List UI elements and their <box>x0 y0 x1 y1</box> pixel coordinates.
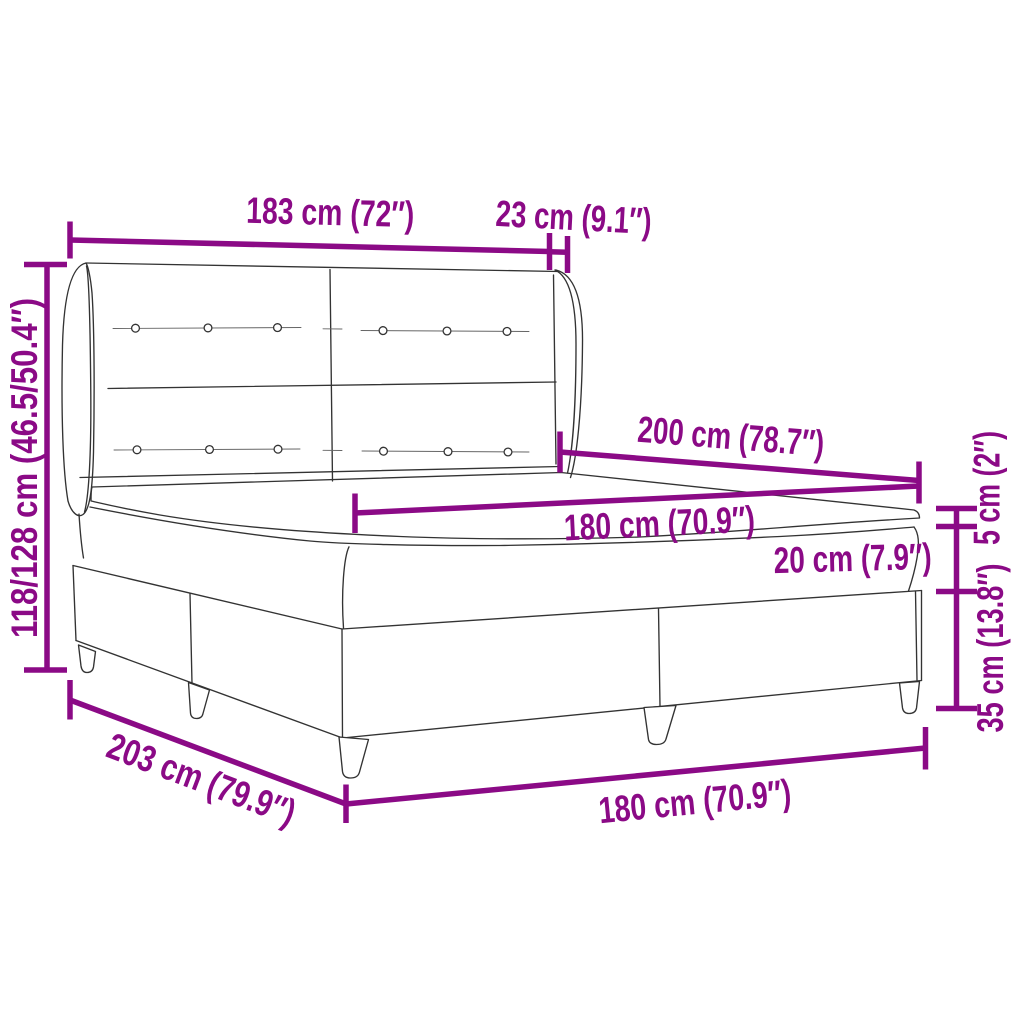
svg-text:5 cm (2″): 5 cm (2″) <box>967 431 1008 545</box>
svg-text:183 cm (72″): 183 cm (72″) <box>246 190 415 235</box>
svg-text:35 cm (13.8″): 35 cm (13.8″) <box>970 564 1011 733</box>
svg-text:20 cm (7.9″): 20 cm (7.9″) <box>773 536 932 581</box>
svg-text:118/128 cm (46.5/50.4″): 118/128 cm (46.5/50.4″) <box>4 298 45 638</box>
svg-text:23 cm (9.1″): 23 cm (9.1″) <box>495 193 653 242</box>
